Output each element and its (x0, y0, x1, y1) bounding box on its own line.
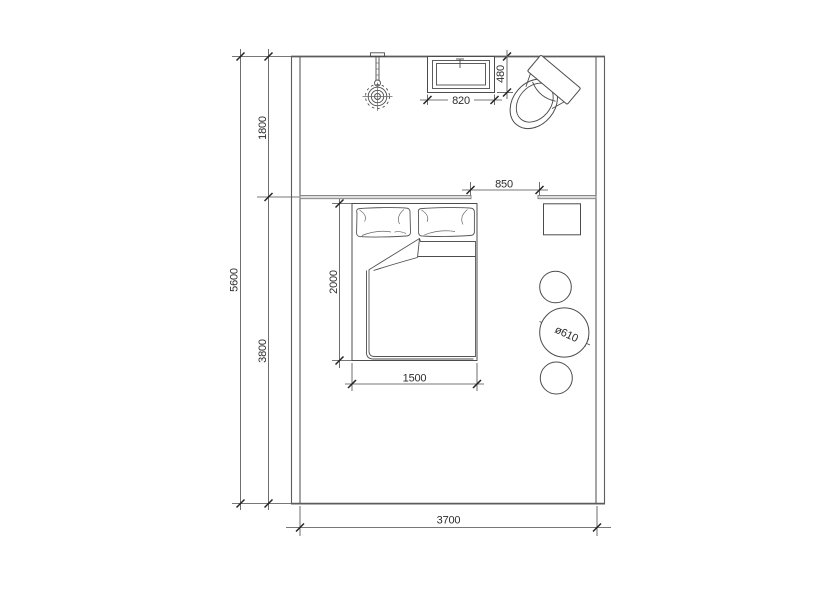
partition-wall-right (538, 196, 596, 199)
window-unit (428, 57, 495, 93)
dim-window-depth: 480 (495, 65, 507, 83)
nightstand (544, 204, 581, 235)
toilet-icon (497, 55, 581, 141)
dim-bed-length: 2000 (328, 270, 340, 294)
dim-window-width: 820 (452, 95, 470, 107)
floor-plan-canvas: 5600 1800 3800 3700 2000 1500 850 820 48… (0, 0, 837, 592)
dim-bed-width: 1500 (403, 373, 427, 385)
dim-upper-depth: 1800 (257, 116, 269, 140)
double-bed (352, 204, 477, 361)
dim-total-depth: 5600 (229, 268, 241, 292)
stool-top (540, 271, 572, 303)
pendant-light-icon (363, 53, 393, 111)
pillow-left (357, 208, 411, 237)
stool-bottom (540, 362, 572, 394)
floor-plan-drawing: 5600 1800 3800 3700 2000 1500 850 820 48… (0, 0, 837, 592)
dim-lower-depth: 3800 (257, 339, 269, 363)
pillow-right (418, 208, 474, 237)
partition-wall-left (300, 196, 471, 199)
dim-door-opening: 850 (495, 179, 513, 191)
dim-room-width: 3700 (437, 515, 461, 527)
